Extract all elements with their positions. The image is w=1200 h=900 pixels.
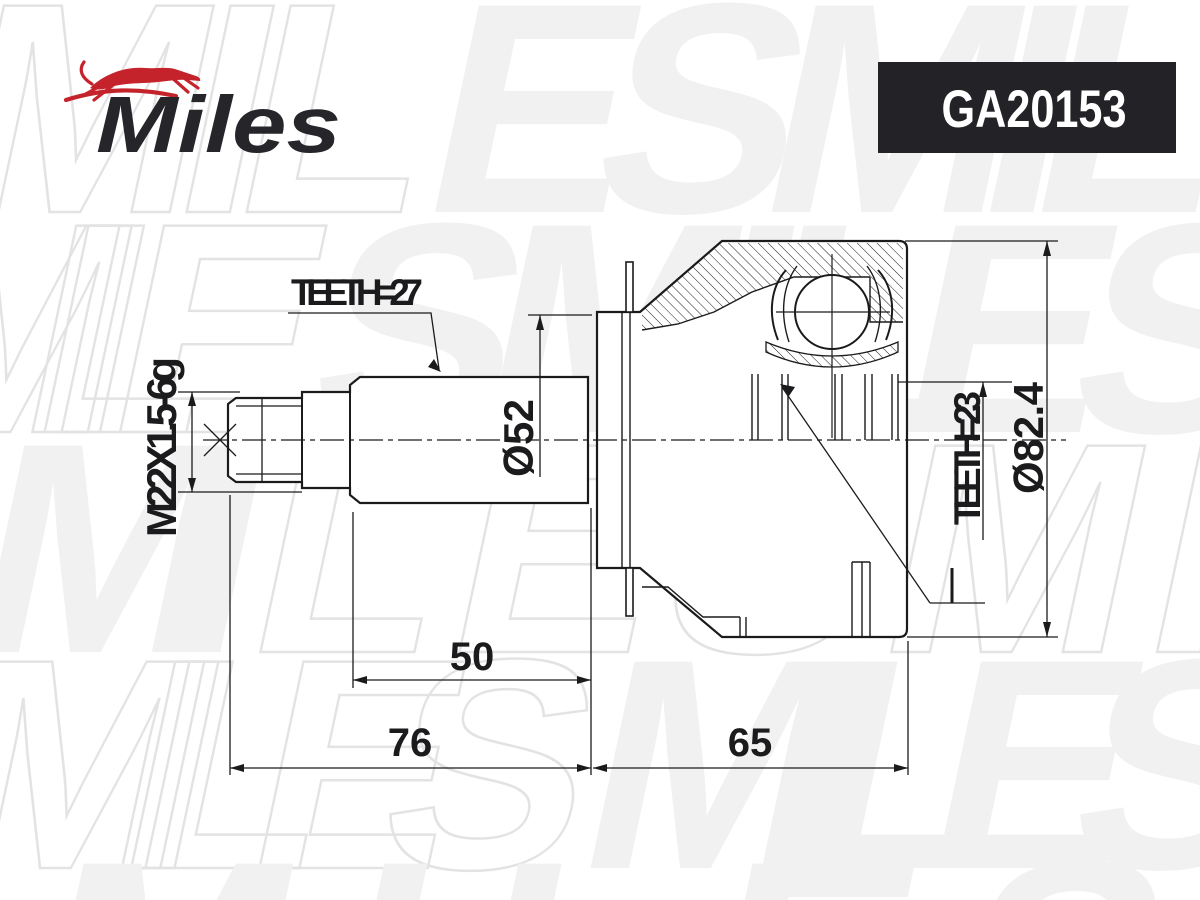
spline-length-value: 50 (450, 635, 495, 679)
teeth-outer-label: TEETH=27 (291, 272, 423, 313)
thread-spec-label: M22X1.5-6g (138, 357, 185, 537)
teeth-inner-label: TEETH=23 (947, 391, 988, 525)
product-drawing-card: MIL ESMIL MILE SMILES MI LESMI MILES MIL… (0, 0, 1200, 900)
boot-tab-top (626, 262, 633, 312)
boot-tab-bottom (626, 568, 633, 616)
housing-length-value: 65 (728, 721, 773, 765)
shaft-length-value: 76 (388, 721, 433, 765)
part-number: GA20153 (942, 80, 1127, 139)
boot-diameter-label: Ø52 (495, 399, 542, 477)
part-number-badge: GA20153 (878, 62, 1176, 153)
watermark-text: MILES (6, 799, 1197, 900)
technical-drawing: MIL ESMIL MILE SMILES MI LESMI MILES MIL… (0, 0, 1200, 900)
brand-name: Miles (96, 80, 341, 169)
outer-diameter-label: Ø82.4 (1005, 381, 1052, 494)
